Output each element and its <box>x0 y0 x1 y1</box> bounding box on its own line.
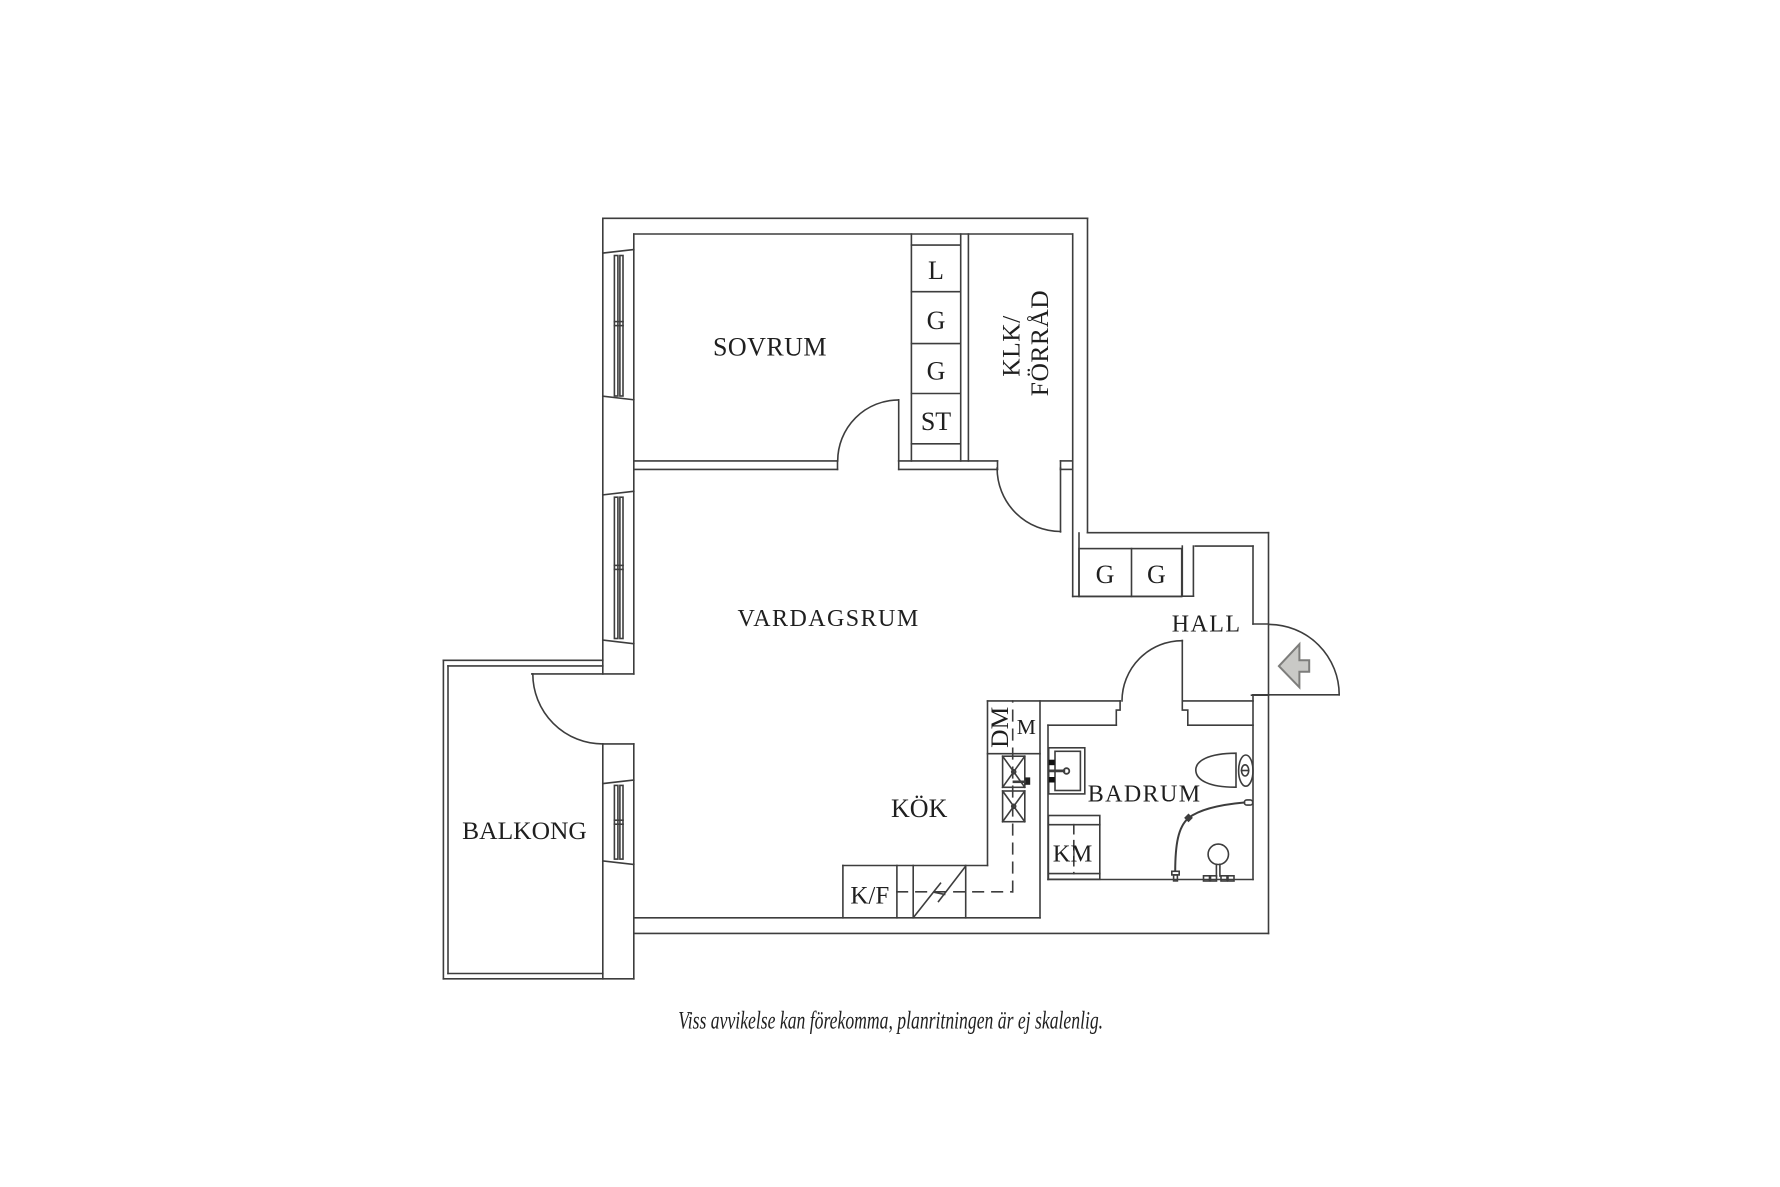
svg-text:HALL: HALL <box>1172 612 1242 638</box>
svg-text:G: G <box>1096 560 1115 589</box>
svg-text:G: G <box>927 306 946 335</box>
svg-text:K/F: K/F <box>850 883 889 910</box>
svg-text:SOVRUM: SOVRUM <box>713 332 827 361</box>
svg-text:DM: DM <box>985 707 1014 748</box>
svg-text:BADRUM: BADRUM <box>1088 782 1202 808</box>
svg-text:FÖRRÅD: FÖRRÅD <box>1025 290 1054 396</box>
svg-text:L: L <box>928 256 944 285</box>
svg-text:KLK/: KLK/ <box>997 315 1026 377</box>
svg-text:KÖK: KÖK <box>891 794 948 823</box>
svg-text:G: G <box>927 357 946 386</box>
svg-text:G: G <box>1147 560 1166 589</box>
svg-text:BALKONG: BALKONG <box>462 816 587 845</box>
svg-text:Viss avvikelse kan förekomma,: Viss avvikelse kan förekomma, planritnin… <box>678 1008 1103 1035</box>
svg-text:ST: ST <box>921 407 951 436</box>
svg-text:VARDAGSRUM: VARDAGSRUM <box>738 606 920 632</box>
svg-text:KM: KM <box>1053 841 1093 868</box>
svg-text:M: M <box>1017 715 1036 739</box>
